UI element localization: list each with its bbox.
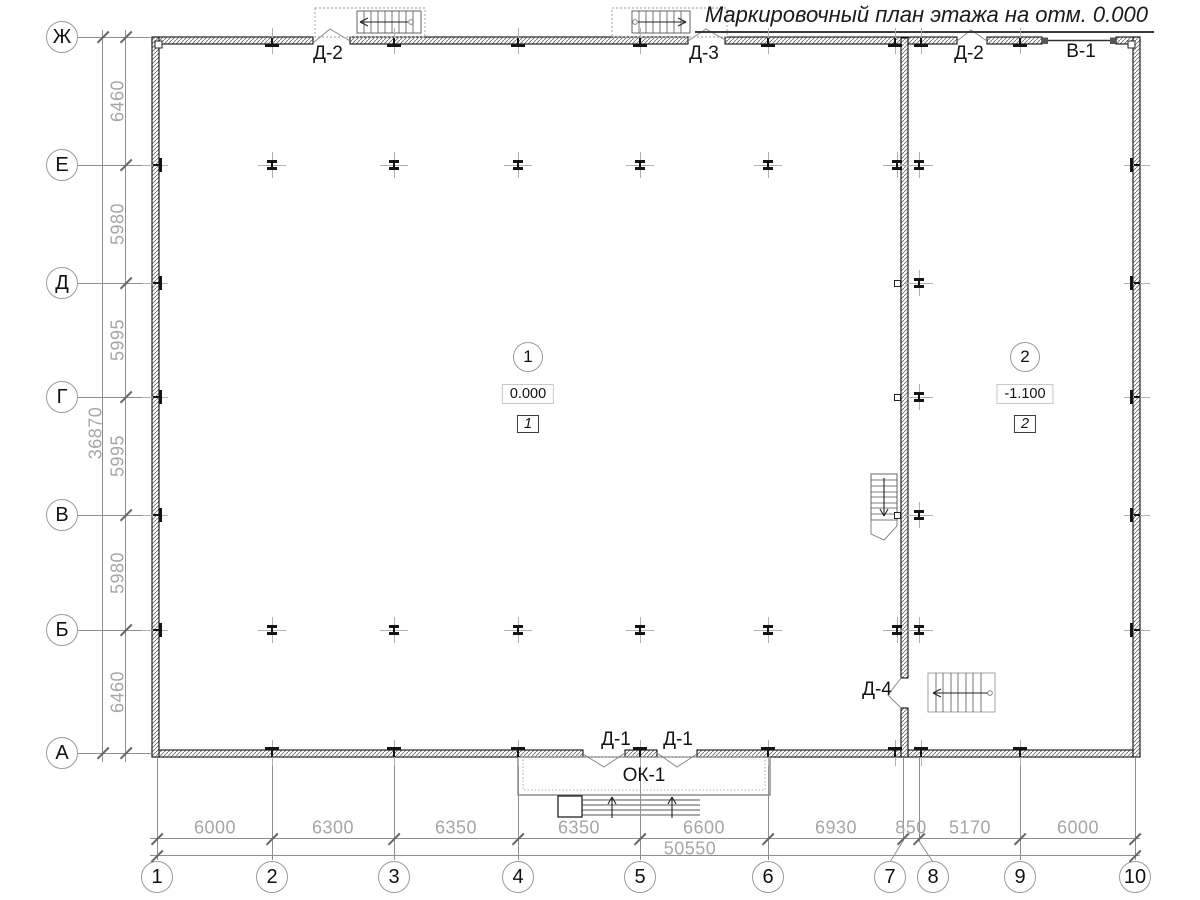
- wall-tick: [153, 282, 159, 285]
- room-zone-box: 2: [1014, 415, 1036, 433]
- drawing-title: Маркировочный план этажа на отм. 0.000: [695, 2, 1154, 33]
- axis-col-bubble: 10: [1119, 861, 1151, 893]
- column-web: [271, 161, 273, 169]
- column-web: [767, 161, 769, 169]
- axis-col-bubble: 5: [624, 861, 656, 893]
- wall-tick: [159, 276, 162, 290]
- wall-tick: [517, 750, 520, 757]
- wall-tick: [1134, 514, 1140, 517]
- wall-tick: [767, 38, 770, 45]
- axis-row-bubble: Д: [46, 267, 78, 299]
- wall-tick: [153, 629, 159, 632]
- axis-col-line: [1135, 758, 1136, 860]
- room-elevation: -1.100: [996, 384, 1053, 404]
- dim-total: 36870: [86, 407, 107, 460]
- axis-row-bubble: Ж: [46, 21, 78, 53]
- axis-col-bubble: 1: [141, 861, 173, 893]
- wall-tick: [1134, 629, 1140, 632]
- dim-value: 5995: [108, 319, 129, 361]
- wall-tick: [920, 38, 923, 45]
- column-web: [639, 626, 641, 634]
- column-web: [918, 511, 920, 519]
- axis-row-line: [78, 515, 152, 516]
- dim-value: 5980: [108, 552, 129, 594]
- wall-tick: [153, 396, 159, 399]
- dim-value: 6600: [683, 818, 725, 839]
- room-elevation: 0.000: [502, 384, 554, 404]
- wall-tick: [1134, 164, 1140, 167]
- wall-tick: [1130, 623, 1133, 637]
- dim-value: 6000: [194, 818, 236, 839]
- wall-tick: [767, 750, 770, 757]
- column-web: [393, 161, 395, 169]
- axis-row-bubble: Е: [46, 149, 78, 181]
- wall-tick: [393, 750, 396, 757]
- opening-label: Д-3: [689, 43, 719, 65]
- wall-tick: [1130, 158, 1133, 172]
- wall-tick: [159, 158, 162, 172]
- axis-col-line: [394, 758, 395, 860]
- wall-tick: [894, 38, 897, 45]
- dim-value: 5170: [949, 818, 991, 839]
- axis-row-line: [78, 37, 152, 38]
- axis-row-bubble: А: [46, 737, 78, 769]
- room-number-bubble: 1: [513, 342, 543, 372]
- wall-tick: [517, 38, 520, 45]
- wall-tick: [159, 390, 162, 404]
- wall-tick: [920, 750, 923, 757]
- opening-label: Д-1: [601, 729, 631, 751]
- wall-tick: [639, 750, 642, 757]
- floor-plan-canvas: Маркировочный план этажа на отм. 0.000 Ж…: [0, 0, 1200, 900]
- wall-pilaster: [894, 512, 901, 519]
- axis-col-line: [768, 758, 769, 860]
- axis-col-line: [1020, 758, 1021, 860]
- column-web: [896, 626, 898, 634]
- dim-value: 6930: [815, 818, 857, 839]
- wall-tick: [1019, 750, 1022, 757]
- walls: [152, 37, 1140, 757]
- wall-tick: [271, 38, 274, 45]
- dim-value: 6300: [312, 818, 354, 839]
- room-number-bubble: 2: [1010, 342, 1040, 372]
- axis-col-bubble: 6: [752, 861, 784, 893]
- wall-tick: [639, 38, 642, 45]
- column-web: [918, 393, 920, 401]
- axis-row-line: [78, 397, 152, 398]
- opening-label: Д-2: [313, 43, 343, 65]
- opening-label: Д-2: [954, 43, 984, 65]
- wall-tick: [894, 750, 897, 757]
- column-web: [517, 161, 519, 169]
- column-web: [896, 161, 898, 169]
- column-web: [393, 626, 395, 634]
- wall-tick: [1134, 396, 1140, 399]
- dim-value: 6350: [435, 818, 477, 839]
- room-zone-box: 1: [517, 415, 539, 433]
- dim-value: 5980: [108, 203, 129, 245]
- dim-value: 6000: [1057, 818, 1099, 839]
- axis-col-bubble: 2: [256, 861, 288, 893]
- wall-tick: [271, 750, 274, 757]
- wall-pilaster: [894, 280, 901, 287]
- axis-row-line: [78, 283, 152, 284]
- dim-value: 6350: [558, 818, 600, 839]
- column-web: [767, 626, 769, 634]
- axis-row-line: [78, 753, 152, 754]
- stair-middle-right: [871, 474, 897, 540]
- dim-value: 5995: [108, 435, 129, 477]
- column-web: [918, 161, 920, 169]
- wall-tick: [1019, 38, 1022, 45]
- axis-col-line: [157, 758, 158, 860]
- opening-label: ОК-1: [623, 765, 666, 787]
- dim-value: 6460: [108, 80, 129, 122]
- wall-tick: [159, 623, 162, 637]
- door-swings: [313, 29, 987, 767]
- wall-tick: [1130, 508, 1133, 522]
- column-web: [918, 279, 920, 287]
- wall-tick: [393, 38, 396, 45]
- wall-tick: [153, 164, 159, 167]
- dim-value: 850: [895, 818, 927, 839]
- dim-total: 50550: [664, 839, 717, 860]
- wall-tick: [1130, 390, 1133, 404]
- axis-col-bubble: 7: [874, 861, 906, 893]
- opening-label: Д-4: [862, 679, 892, 701]
- column-web: [517, 626, 519, 634]
- wall-tick: [153, 514, 159, 517]
- wall-tick: [159, 508, 162, 522]
- stair-top-left: [315, 8, 425, 37]
- axis-row-line: [78, 165, 152, 166]
- wall-tick: [1134, 282, 1140, 285]
- axis-row-bubble: Г: [46, 381, 78, 413]
- axis-col-line: [272, 758, 273, 860]
- axis-col-bubble: 3: [378, 861, 410, 893]
- column-web: [639, 161, 641, 169]
- wall-tick: [1130, 276, 1133, 290]
- column-web: [918, 626, 920, 634]
- axis-row-bubble: Б: [46, 614, 78, 646]
- axis-col-line: [518, 758, 519, 860]
- axis-col-bubble: 4: [502, 861, 534, 893]
- opening-label: В-1: [1066, 41, 1096, 63]
- axis-col-bubble: 8: [917, 861, 949, 893]
- opening-label: Д-1: [663, 729, 693, 751]
- column-web: [271, 626, 273, 634]
- dim-value: 6460: [108, 671, 129, 713]
- axis-row-line: [78, 630, 152, 631]
- axis-row-bubble: В: [46, 499, 78, 531]
- wall-pilaster: [894, 394, 901, 401]
- stair-d4: [928, 673, 995, 712]
- axis-col-bubble: 9: [1004, 861, 1036, 893]
